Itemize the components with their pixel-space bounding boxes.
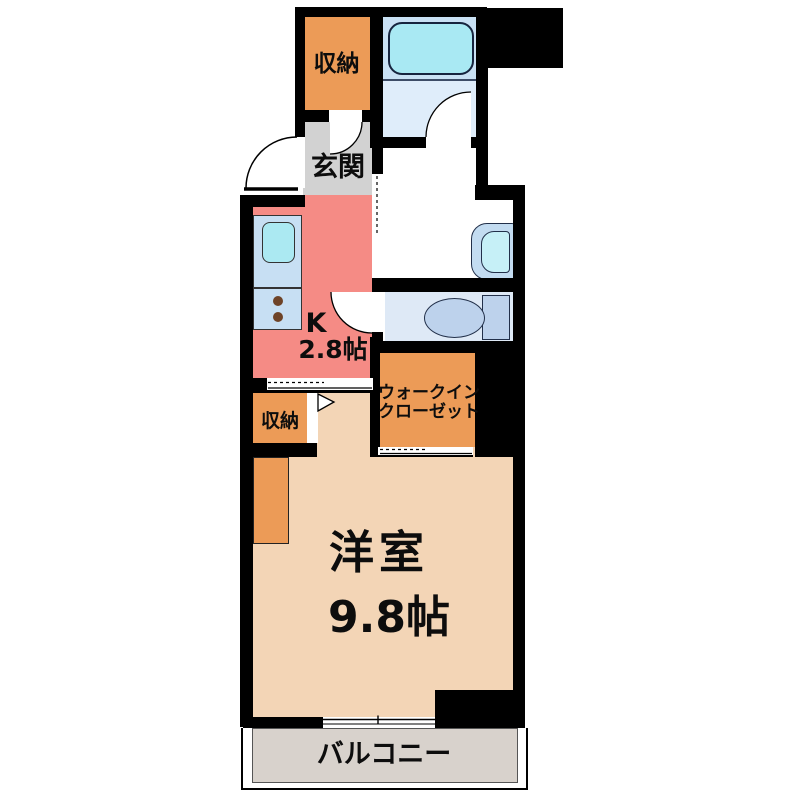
label-room-size: 9.8帖 (305, 595, 473, 641)
stove-burner (273, 296, 283, 306)
toilet-bowl (424, 298, 485, 338)
label-wic-line2: クローゼット (378, 404, 477, 422)
label-kitchen-size: 2.8帖 (294, 337, 372, 363)
wall (476, 8, 563, 68)
label-balcony: バルコニー (252, 741, 516, 769)
stove-burner (273, 312, 283, 322)
label-wic-line1: ウォークイン (378, 385, 477, 403)
bathtub (388, 22, 474, 75)
wall (240, 195, 253, 727)
wall (243, 717, 325, 728)
wall (372, 278, 513, 292)
sliding-door-kitchen-room (267, 378, 373, 390)
storage-mid-door (307, 393, 318, 443)
sliding-door-closet (378, 447, 473, 455)
wall (435, 690, 525, 728)
toilet-tank (482, 295, 510, 340)
floor-plan: 収納 玄関 K 2.8帖 ウォークイン クローゼット 収納 洋室 9.8帖 バル… (0, 0, 800, 800)
wall (471, 137, 488, 148)
sliding-door-washroom (372, 174, 383, 278)
window-balcony (323, 717, 435, 728)
washbasin-bowl (481, 231, 510, 273)
wall (476, 15, 488, 200)
bath-floor-divider (383, 79, 476, 81)
bathroom-door-opening (426, 137, 471, 148)
room-bath-lower (383, 80, 476, 138)
label-room-name: 洋室 (295, 529, 463, 576)
wall (267, 390, 373, 393)
wall (475, 185, 525, 200)
kitchen-counter-divider (253, 287, 302, 289)
wall (383, 137, 426, 148)
label-storage-top: 収納 (303, 52, 370, 76)
wall (247, 378, 267, 393)
label-storage-mid: 収納 (253, 412, 307, 432)
wall (475, 345, 513, 457)
wall (370, 8, 383, 148)
toilet-door-opening (372, 292, 383, 332)
kitchen-sink (262, 222, 295, 263)
wall (248, 443, 317, 457)
label-entrance: 玄関 (302, 154, 374, 182)
wall (303, 110, 329, 122)
entrance-door-arc (246, 137, 297, 188)
counter-unit-main-room (253, 457, 289, 544)
storage-top-door-opening (329, 110, 362, 122)
wall (295, 7, 487, 17)
wall (513, 200, 525, 728)
